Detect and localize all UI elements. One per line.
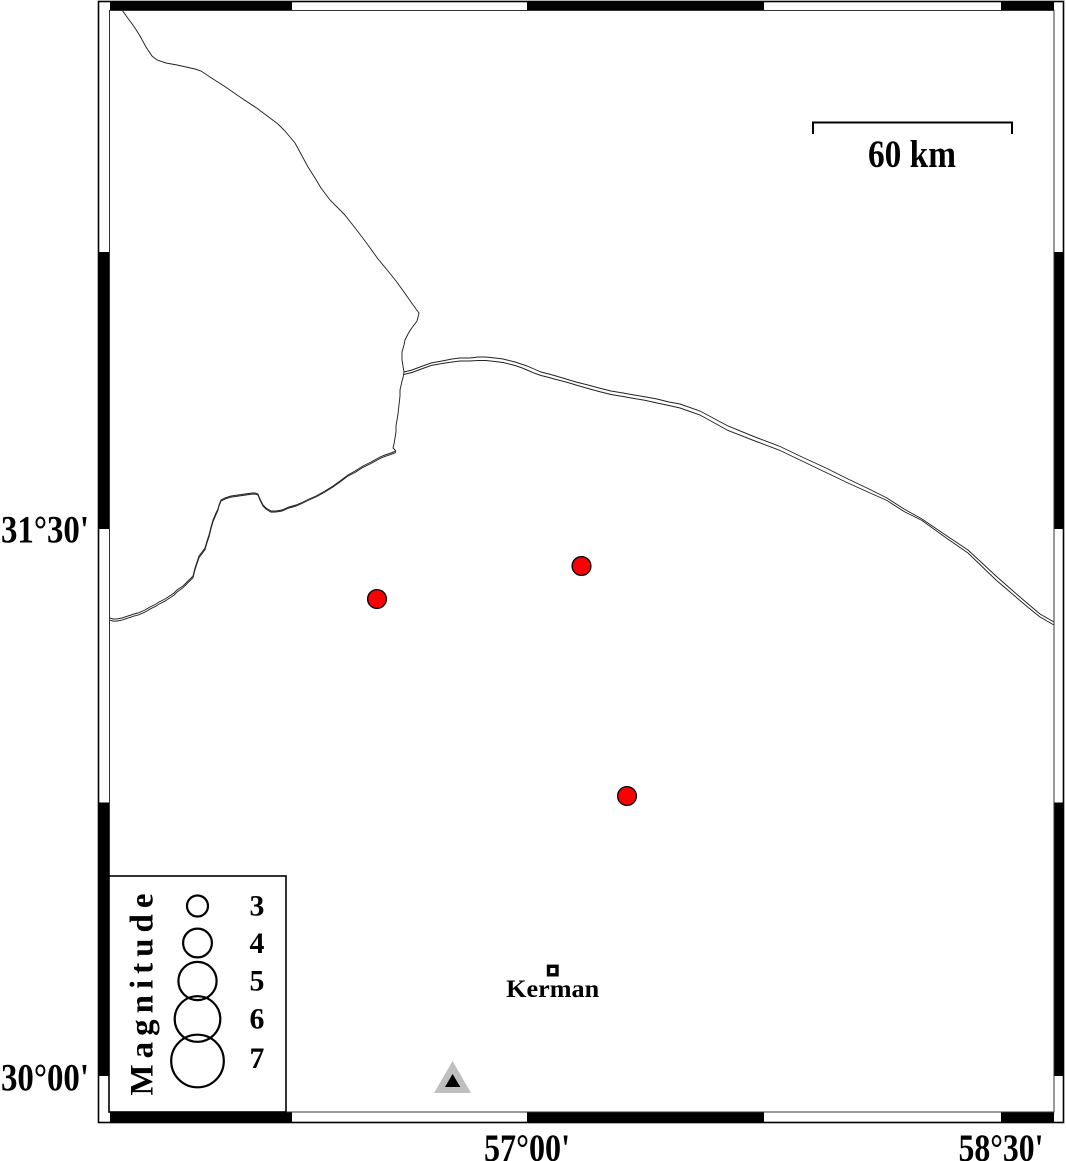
svg-text:60 km: 60 km	[868, 133, 956, 176]
svg-text:Kerman: Kerman	[506, 975, 599, 1003]
svg-text:57°00': 57°00'	[484, 1127, 570, 1161]
svg-text:3: 3	[250, 889, 265, 922]
svg-text:58°30': 58°30'	[959, 1127, 1044, 1161]
svg-text:4: 4	[250, 927, 265, 960]
svg-text:5: 5	[250, 964, 265, 997]
svg-text:Magnitude: Magnitude	[124, 887, 160, 1095]
svg-text:7: 7	[250, 1042, 265, 1075]
svg-text:6: 6	[250, 1002, 265, 1035]
svg-text:31°30': 31°30'	[1, 509, 89, 552]
svg-text:30°00': 30°00'	[1, 1057, 89, 1100]
